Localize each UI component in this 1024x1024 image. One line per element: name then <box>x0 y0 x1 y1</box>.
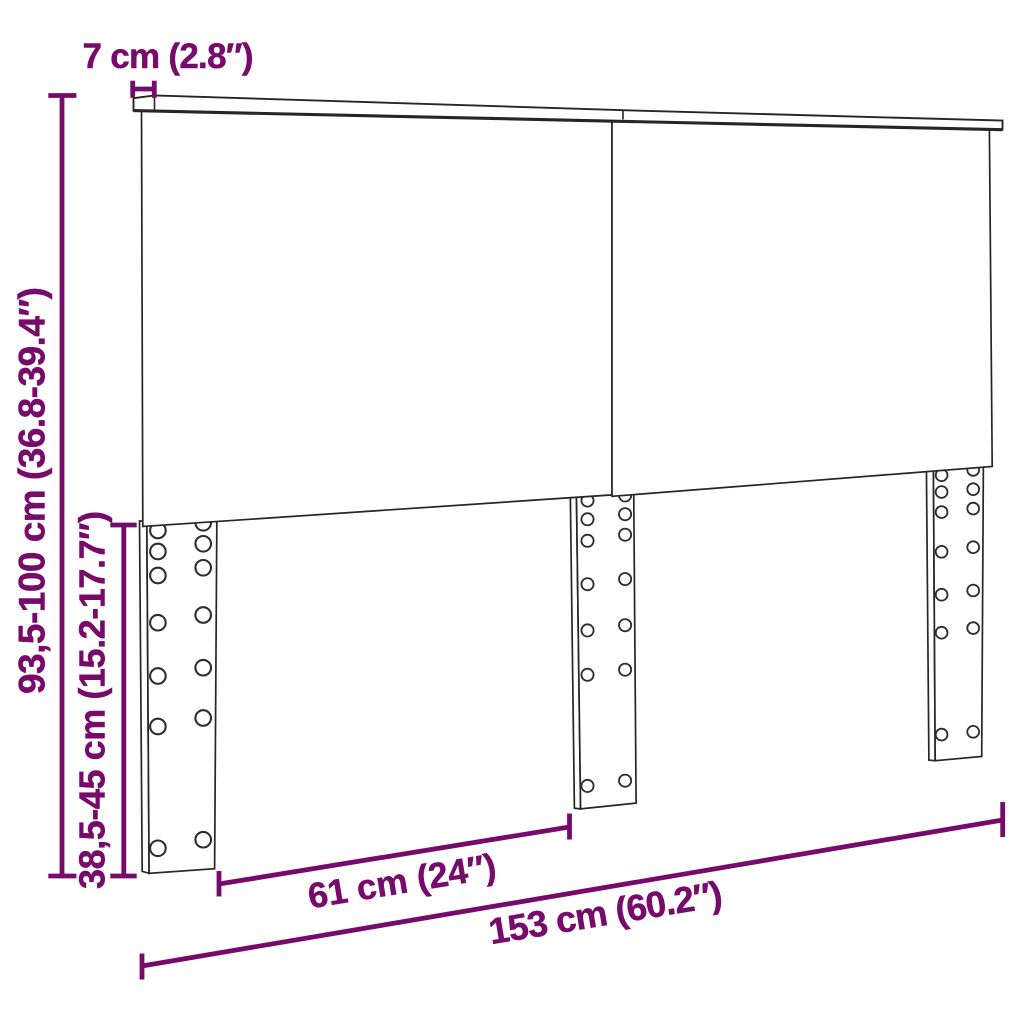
svg-text:38,5-45 cm (15.2-17.7″): 38,5-45 cm (15.2-17.7″) <box>72 511 113 889</box>
svg-text:7 cm (2.8″): 7 cm (2.8″) <box>83 37 254 76</box>
svg-text:93,5-100 cm (36.8-39.4″): 93,5-100 cm (36.8-39.4″) <box>12 287 53 694</box>
